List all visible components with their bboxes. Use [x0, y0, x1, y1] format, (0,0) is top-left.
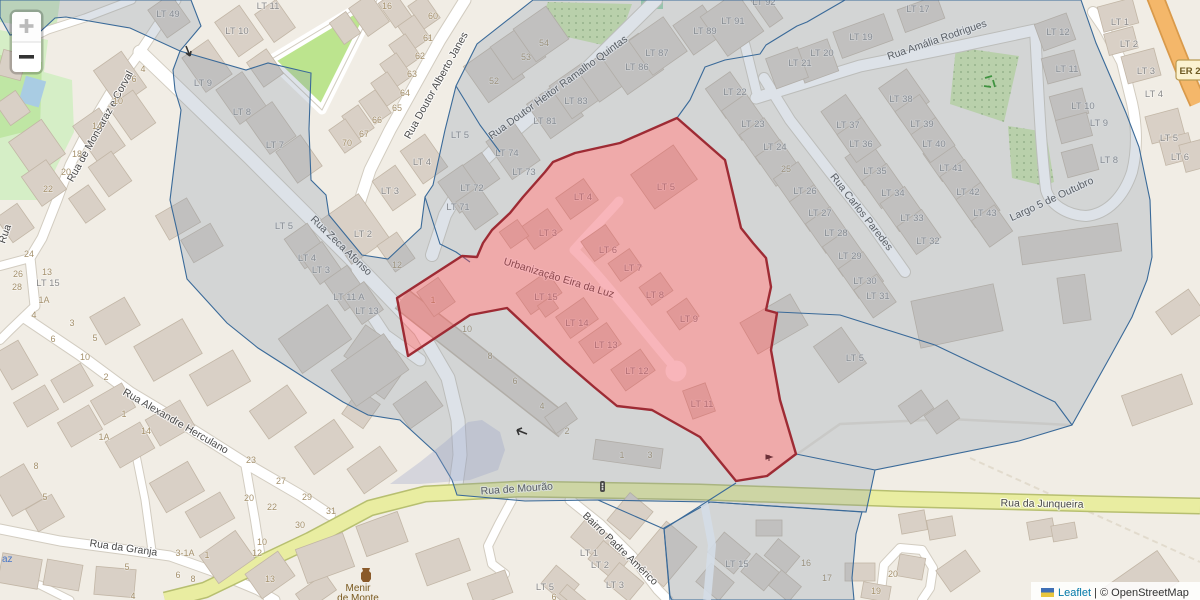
- svg-text:LT 2: LT 2: [354, 229, 372, 240]
- svg-text:6: 6: [50, 334, 55, 344]
- svg-text:LT 15: LT 15: [36, 278, 59, 289]
- svg-text:2: 2: [103, 372, 108, 382]
- svg-text:8: 8: [190, 574, 195, 584]
- svg-text:6: 6: [131, 74, 136, 84]
- svg-text:4: 4: [31, 310, 36, 320]
- svg-text:31: 31: [326, 506, 336, 516]
- svg-text:5: 5: [92, 333, 97, 343]
- svg-text:6: 6: [551, 592, 556, 600]
- svg-text:14: 14: [92, 121, 102, 131]
- svg-text:19: 19: [871, 586, 881, 596]
- svg-text:18: 18: [72, 149, 82, 159]
- svg-text:LT 5: LT 5: [1160, 133, 1178, 144]
- svg-text:ER 2: ER 2: [1179, 66, 1200, 77]
- svg-text:60: 60: [428, 11, 438, 21]
- svg-text:5: 5: [42, 492, 47, 502]
- svg-text:1: 1: [204, 550, 209, 560]
- svg-text:LT 1: LT 1: [580, 548, 598, 559]
- svg-text:23: 23: [246, 455, 256, 465]
- svg-text:Rua da Junqueira: Rua da Junqueira: [1001, 497, 1084, 510]
- svg-text:16: 16: [382, 1, 392, 11]
- svg-text:20: 20: [888, 569, 898, 579]
- svg-text:70: 70: [342, 138, 352, 148]
- svg-text:LT 4: LT 4: [413, 157, 431, 168]
- svg-text:LT 10: LT 10: [225, 26, 248, 37]
- svg-text:14: 14: [141, 426, 151, 436]
- svg-text:LT 2: LT 2: [1120, 39, 1138, 50]
- svg-text:LT 3: LT 3: [381, 186, 399, 197]
- svg-text:13: 13: [265, 574, 275, 584]
- svg-text:62: 62: [415, 51, 425, 61]
- svg-text:24: 24: [24, 249, 34, 259]
- svg-text:13: 13: [42, 267, 52, 277]
- svg-text:LT 2: LT 2: [591, 560, 609, 571]
- svg-text:6: 6: [175, 570, 180, 580]
- svg-text:64: 64: [400, 88, 410, 98]
- svg-text:67: 67: [359, 129, 369, 139]
- svg-text:63: 63: [407, 69, 417, 79]
- svg-text:4: 4: [130, 591, 135, 600]
- svg-text:27: 27: [276, 476, 286, 486]
- svg-text:3-1A: 3-1A: [175, 548, 194, 558]
- svg-text:LT 6: LT 6: [1171, 152, 1189, 163]
- svg-text:LT 1: LT 1: [1111, 17, 1129, 28]
- svg-text:8: 8: [33, 461, 38, 471]
- svg-text:10: 10: [113, 96, 123, 106]
- svg-text:az: az: [2, 554, 13, 565]
- svg-text:LT 3: LT 3: [1137, 66, 1155, 77]
- svg-text:65: 65: [392, 103, 402, 113]
- svg-text:3: 3: [69, 318, 74, 328]
- svg-text:61: 61: [423, 33, 433, 43]
- svg-text:4: 4: [140, 64, 145, 74]
- svg-text:22: 22: [267, 502, 277, 512]
- svg-text:20: 20: [244, 493, 254, 503]
- svg-text:12: 12: [252, 548, 262, 558]
- svg-text:1: 1: [121, 409, 126, 419]
- svg-text:66: 66: [372, 115, 382, 125]
- svg-text:1A: 1A: [98, 432, 109, 442]
- svg-text:5: 5: [124, 562, 129, 572]
- svg-text:30: 30: [295, 520, 305, 530]
- svg-text:LT 3: LT 3: [606, 580, 624, 591]
- svg-text:29: 29: [302, 492, 312, 502]
- svg-text:de Monte: de Monte: [337, 593, 379, 600]
- svg-text:Leaflet | © OpenStreetMap: Leaflet | © OpenStreetMap: [1058, 587, 1189, 599]
- svg-text:26: 26: [13, 269, 23, 279]
- svg-text:10: 10: [80, 352, 90, 362]
- svg-text:20: 20: [61, 167, 71, 177]
- svg-text:LT 4: LT 4: [1145, 89, 1163, 100]
- svg-text:22: 22: [43, 184, 53, 194]
- svg-text:10: 10: [257, 537, 267, 547]
- svg-text:28: 28: [12, 282, 22, 292]
- svg-text:LT 11: LT 11: [257, 1, 280, 12]
- svg-text:1A: 1A: [38, 295, 49, 305]
